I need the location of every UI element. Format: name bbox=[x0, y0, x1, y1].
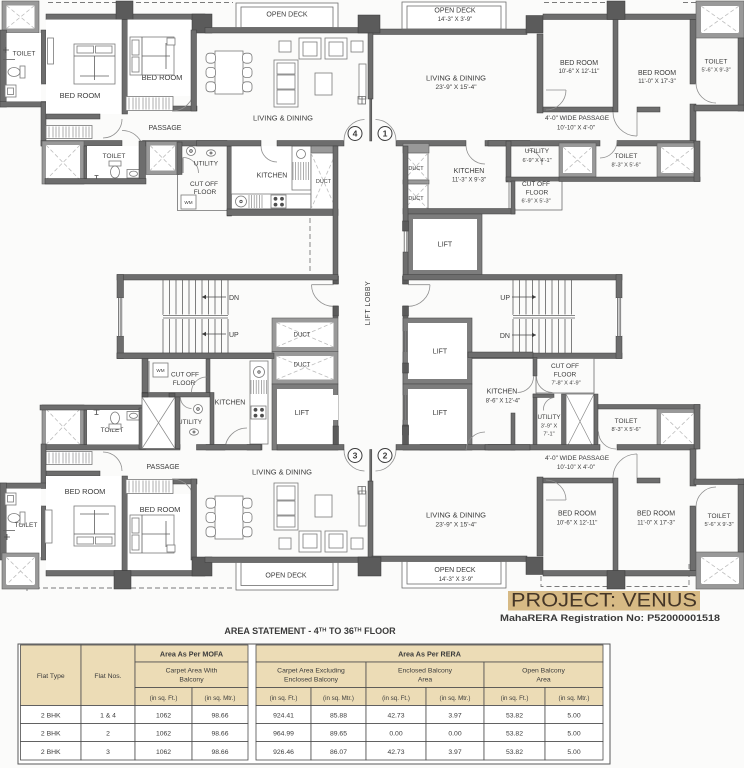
svg-text:2: 2 bbox=[106, 731, 110, 738]
svg-text:3: 3 bbox=[353, 451, 358, 461]
svg-text:Area: Area bbox=[536, 677, 551, 684]
svg-text:MahaRERA Registration No: P520: MahaRERA Registration No: P52000001518 bbox=[500, 613, 720, 623]
svg-text:BED ROOM: BED ROOM bbox=[60, 91, 101, 100]
svg-text:DUCT: DUCT bbox=[316, 179, 332, 185]
svg-text:FLOOR: FLOOR bbox=[554, 372, 577, 379]
svg-text:14'-3" X 3'-9": 14'-3" X 3'-9" bbox=[438, 17, 473, 23]
svg-text:3.97: 3.97 bbox=[448, 749, 461, 756]
svg-text:DN: DN bbox=[500, 333, 510, 340]
svg-text:LIVING & DINING: LIVING & DINING bbox=[253, 114, 313, 123]
svg-text:3: 3 bbox=[106, 749, 110, 756]
svg-text:23'-9" X 15'-4": 23'-9" X 15'-4" bbox=[435, 522, 477, 529]
svg-text:10'-6" X 12'-11": 10'-6" X 12'-11" bbox=[559, 69, 600, 75]
svg-text:CUT OFF: CUT OFF bbox=[551, 363, 579, 370]
svg-text:926.46: 926.46 bbox=[273, 749, 294, 756]
svg-text:89.65: 89.65 bbox=[330, 731, 347, 738]
svg-text:LIFT: LIFT bbox=[433, 349, 448, 356]
svg-text:2 BHK: 2 BHK bbox=[41, 713, 61, 720]
svg-text:4: 4 bbox=[353, 129, 358, 139]
svg-text:TOILET: TOILET bbox=[13, 51, 36, 58]
svg-text:(in sq. Mtr.): (in sq. Mtr.) bbox=[559, 695, 590, 702]
svg-text:TOILET: TOILET bbox=[615, 153, 638, 160]
svg-text:PROJECT: VENUS: PROJECT: VENUS bbox=[511, 590, 697, 612]
svg-text:10'-6" X 12'-11": 10'-6" X 12'-11" bbox=[557, 521, 598, 527]
svg-text:TOILET: TOILET bbox=[705, 59, 728, 66]
svg-text:98.66: 98.66 bbox=[211, 731, 228, 738]
svg-text:CUT OFF: CUT OFF bbox=[171, 372, 199, 379]
svg-text:Area As Per RERA: Area As Per RERA bbox=[398, 650, 461, 659]
svg-text:UP: UP bbox=[500, 295, 510, 302]
svg-text:(in sq. Ft.): (in sq. Ft.) bbox=[501, 695, 529, 702]
svg-text:7'-8" X 4'-9": 7'-8" X 4'-9" bbox=[551, 381, 580, 387]
svg-text:(in sq. Mtr.): (in sq. Mtr.) bbox=[205, 695, 236, 702]
svg-text:Balcony: Balcony bbox=[179, 677, 204, 684]
svg-text:8'-3" X 5'-6": 8'-3" X 5'-6" bbox=[611, 163, 640, 169]
svg-text:Open Balcony: Open Balcony bbox=[522, 668, 565, 675]
svg-text:1062: 1062 bbox=[156, 713, 171, 720]
svg-text:Enclosed Balcony: Enclosed Balcony bbox=[284, 677, 339, 684]
svg-text:Area As Per MOFA: Area As Per MOFA bbox=[160, 650, 223, 659]
svg-text:Carpet Area With: Carpet Area With bbox=[166, 668, 218, 675]
svg-text:(in sq. Mtr.): (in sq. Mtr.) bbox=[440, 695, 471, 702]
svg-text:LIVING & DINING: LIVING & DINING bbox=[426, 74, 486, 83]
svg-text:1 & 4: 1 & 4 bbox=[100, 713, 116, 720]
svg-text:10'-10" X 4'-0": 10'-10" X 4'-0" bbox=[557, 126, 595, 132]
svg-text:2 BHK: 2 BHK bbox=[41, 749, 61, 756]
svg-text:BED ROOM: BED ROOM bbox=[65, 487, 106, 496]
svg-text:FLOOR: FLOOR bbox=[173, 380, 196, 387]
svg-text:8'-6" X 12'-4": 8'-6" X 12'-4" bbox=[486, 399, 521, 405]
svg-text:UTILITY: UTILITY bbox=[194, 161, 219, 168]
svg-text:42.73: 42.73 bbox=[387, 713, 404, 720]
svg-text:8'-3" X 5'-6": 8'-3" X 5'-6" bbox=[611, 427, 640, 433]
svg-text:OPEN DECK: OPEN DECK bbox=[266, 12, 308, 19]
svg-text:10'-10" X 4'-0": 10'-10" X 4'-0" bbox=[557, 465, 595, 471]
svg-text:Flat Nos.: Flat Nos. bbox=[94, 673, 121, 680]
svg-text:11'-0" X 17'-3": 11'-0" X 17'-3" bbox=[638, 79, 675, 85]
svg-text:OPEN DECK: OPEN DECK bbox=[265, 573, 307, 580]
svg-text:BED ROOM: BED ROOM bbox=[638, 70, 676, 77]
svg-text:BED ROOM: BED ROOM bbox=[560, 60, 598, 67]
svg-text:14'-3" X 3'-9": 14'-3" X 3'-9" bbox=[439, 577, 474, 583]
svg-text:53.82: 53.82 bbox=[506, 749, 523, 756]
svg-text:0.00: 0.00 bbox=[448, 731, 461, 738]
svg-text:WM: WM bbox=[156, 368, 164, 373]
svg-text:UTILITY: UTILITY bbox=[178, 419, 203, 426]
svg-text:3.97: 3.97 bbox=[448, 713, 461, 720]
svg-text:0.00: 0.00 bbox=[389, 731, 402, 738]
svg-text:PASSAGE: PASSAGE bbox=[147, 464, 180, 471]
svg-text:FLOOR: FLOOR bbox=[526, 190, 549, 197]
svg-text:LIFT LOBBY: LIFT LOBBY bbox=[365, 281, 372, 326]
svg-text:(in sq. Mtr.): (in sq. Mtr.) bbox=[323, 695, 354, 702]
svg-text:53.82: 53.82 bbox=[506, 731, 523, 738]
svg-text:4'-0" WIDE PASSAGE: 4'-0" WIDE PASSAGE bbox=[545, 455, 610, 462]
svg-text:924.41: 924.41 bbox=[273, 713, 294, 720]
svg-text:BED ROOM: BED ROOM bbox=[558, 511, 596, 518]
svg-text:TOILET: TOILET bbox=[708, 513, 731, 520]
svg-text:UTILITY: UTILITY bbox=[537, 414, 560, 421]
svg-text:KITCHEN: KITCHEN bbox=[454, 168, 485, 175]
svg-text:1062: 1062 bbox=[156, 749, 171, 756]
svg-text:AREA STATEMENT - 4TH TO 36TH F: AREA STATEMENT - 4TH TO 36TH FLOOR bbox=[224, 626, 396, 636]
svg-text:DUCT: DUCT bbox=[408, 196, 424, 202]
svg-text:DN: DN bbox=[229, 295, 239, 302]
svg-text:LIFT: LIFT bbox=[438, 242, 453, 249]
svg-text:DUCT: DUCT bbox=[294, 333, 311, 339]
svg-text:TOILET: TOILET bbox=[615, 418, 638, 425]
svg-text:(in sq. Ft.): (in sq. Ft.) bbox=[150, 695, 178, 702]
svg-text:OPEN DECK: OPEN DECK bbox=[434, 8, 476, 15]
svg-text:WM: WM bbox=[184, 200, 192, 205]
svg-text:KITCHEN: KITCHEN bbox=[215, 400, 246, 407]
svg-text:(in sq. Ft.): (in sq. Ft.) bbox=[382, 695, 410, 702]
svg-text:5'-6" X 9'-3": 5'-6" X 9'-3" bbox=[704, 522, 733, 528]
svg-text:BED ROOM: BED ROOM bbox=[637, 511, 675, 518]
svg-text:2: 2 bbox=[383, 451, 388, 461]
svg-text:UP: UP bbox=[229, 332, 239, 339]
svg-text:11'-0" X 17'-3": 11'-0" X 17'-3" bbox=[637, 521, 674, 527]
svg-text:6'-9" X 4'-1": 6'-9" X 4'-1" bbox=[522, 158, 551, 164]
svg-text:2 BHK: 2 BHK bbox=[41, 731, 61, 738]
svg-text:Area: Area bbox=[418, 677, 433, 684]
svg-text:42.73: 42.73 bbox=[387, 749, 404, 756]
svg-text:5.00: 5.00 bbox=[567, 731, 580, 738]
svg-text:FLOOR: FLOOR bbox=[194, 189, 217, 196]
svg-text:KITCHEN: KITCHEN bbox=[487, 389, 518, 396]
svg-text:TOILET: TOILET bbox=[103, 153, 126, 160]
svg-text:53.82: 53.82 bbox=[506, 713, 523, 720]
svg-text:964.99: 964.99 bbox=[273, 731, 294, 738]
svg-text:5.00: 5.00 bbox=[567, 749, 580, 756]
svg-text:85.88: 85.88 bbox=[330, 713, 347, 720]
svg-text:UTILITY: UTILITY bbox=[525, 148, 550, 155]
svg-text:98.66: 98.66 bbox=[211, 713, 228, 720]
svg-text:6'-9" X 5'-3": 6'-9" X 5'-3" bbox=[521, 199, 550, 205]
svg-text:OPEN DECK: OPEN DECK bbox=[434, 567, 476, 574]
svg-text:LIVING & DINING: LIVING & DINING bbox=[252, 468, 312, 477]
svg-text:23'-9" X 15'-4": 23'-9" X 15'-4" bbox=[435, 84, 477, 91]
svg-text:LIFT: LIFT bbox=[433, 410, 448, 417]
svg-text:Flat Type: Flat Type bbox=[37, 673, 65, 680]
svg-text:LIFT: LIFT bbox=[295, 410, 310, 417]
svg-text:98.66: 98.66 bbox=[211, 749, 228, 756]
svg-text:(in sq. Ft.): (in sq. Ft.) bbox=[270, 695, 298, 702]
svg-text:11'-3" X 9'-3": 11'-3" X 9'-3" bbox=[452, 178, 486, 184]
svg-text:LIVING & DINING: LIVING & DINING bbox=[426, 511, 486, 520]
svg-text:DUCT: DUCT bbox=[408, 166, 424, 172]
svg-text:Carpet Area Excluding: Carpet Area Excluding bbox=[277, 668, 345, 675]
svg-text:86.07: 86.07 bbox=[330, 749, 347, 756]
svg-text:3'-9" X: 3'-9" X bbox=[541, 424, 558, 430]
svg-text:7'-1": 7'-1" bbox=[543, 432, 554, 438]
svg-text:BED ROOM: BED ROOM bbox=[140, 505, 181, 514]
svg-text:4'-0" WIDE PASSAGE: 4'-0" WIDE PASSAGE bbox=[545, 115, 610, 122]
svg-text:TOILET: TOILET bbox=[15, 522, 38, 529]
svg-text:PASSAGE: PASSAGE bbox=[149, 125, 182, 132]
svg-text:DUCT: DUCT bbox=[294, 363, 311, 369]
svg-text:Enclosed Balcony: Enclosed Balcony bbox=[398, 668, 453, 675]
svg-text:1062: 1062 bbox=[156, 731, 171, 738]
svg-text:5'-6" X 9'-3": 5'-6" X 9'-3" bbox=[701, 68, 730, 74]
svg-text:CUT OFF: CUT OFF bbox=[522, 181, 550, 188]
svg-text:CUT OFF: CUT OFF bbox=[190, 181, 218, 188]
svg-text:5.00: 5.00 bbox=[567, 713, 580, 720]
svg-text:KITCHEN: KITCHEN bbox=[257, 173, 288, 180]
svg-text:1: 1 bbox=[383, 129, 388, 139]
